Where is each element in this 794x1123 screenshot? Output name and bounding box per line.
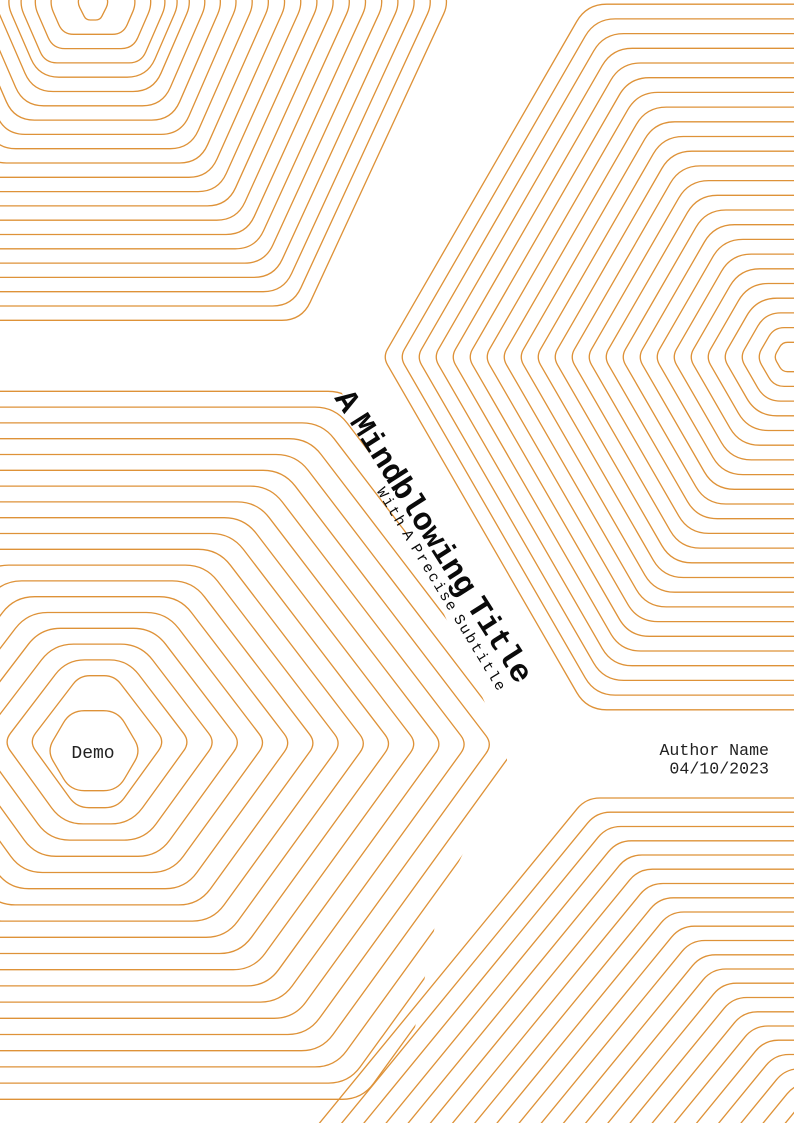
svg-text:Author Name: Author Name <box>659 741 769 760</box>
svg-text:Demo: Demo <box>71 744 114 764</box>
svg-text:04/10/2023: 04/10/2023 <box>669 760 769 779</box>
